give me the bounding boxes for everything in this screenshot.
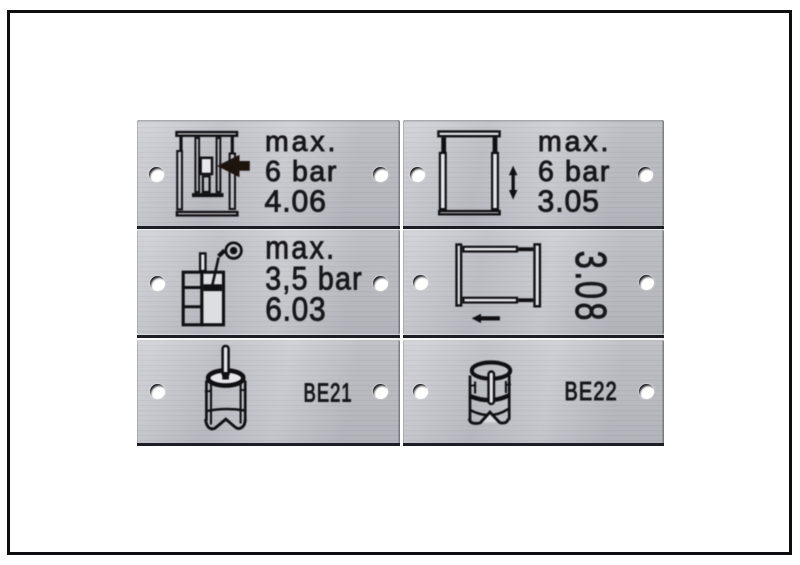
svg-text:max.: max. xyxy=(538,126,611,158)
svg-text:3.08: 3.08 xyxy=(566,251,615,321)
svg-text:BE21: BE21 xyxy=(304,378,353,407)
svg-text:3.05: 3.05 xyxy=(538,186,600,219)
svg-text:4.06: 4.06 xyxy=(265,186,327,219)
svg-text:6 bar: 6 bar xyxy=(538,156,611,188)
svg-text:max.: max. xyxy=(265,126,338,158)
svg-text:6 bar: 6 bar xyxy=(265,156,338,188)
svg-text:6.03: 6.03 xyxy=(265,290,326,328)
svg-text:BE22: BE22 xyxy=(565,377,618,406)
